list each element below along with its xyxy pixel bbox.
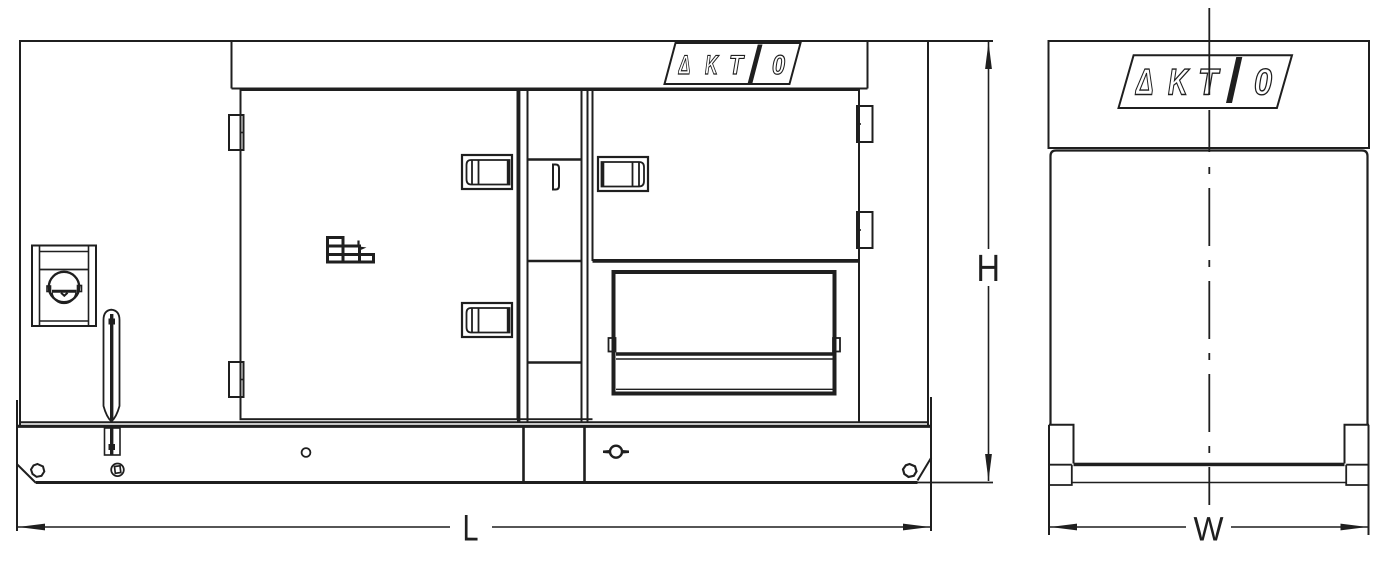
svg-text:0: 0 [1254, 62, 1272, 103]
svg-text:W: W [1193, 510, 1223, 548]
svg-text:H: H [976, 248, 1000, 290]
svg-text:Δ: Δ [678, 50, 690, 80]
svg-text:L: L [462, 508, 478, 549]
svg-text:K: K [1168, 62, 1190, 103]
svg-text:K: K [705, 50, 720, 80]
svg-text:T: T [729, 50, 745, 80]
svg-text:Δ: Δ [1135, 62, 1154, 103]
svg-text:0: 0 [772, 50, 785, 80]
